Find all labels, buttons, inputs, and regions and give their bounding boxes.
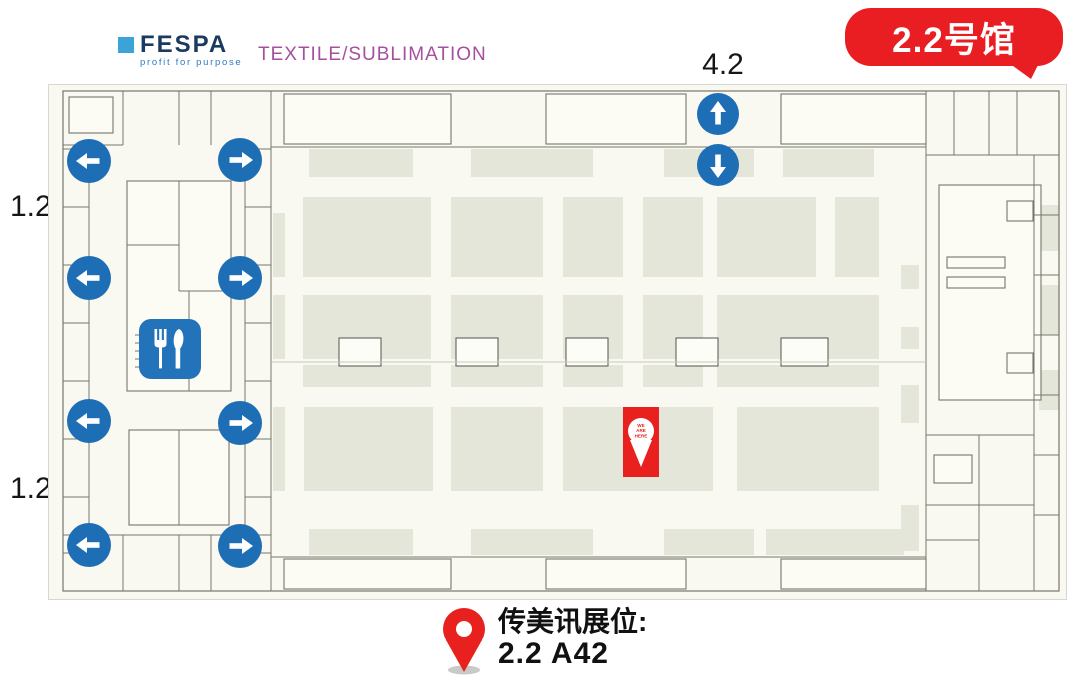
booth-block: [303, 365, 431, 387]
fespa-wordmark: FESPA: [140, 34, 242, 56]
booth-block: [303, 197, 431, 277]
booth-block: [664, 529, 754, 555]
booth-block: [471, 529, 593, 555]
arrow-right-icon: [218, 256, 262, 300]
arrow-right-icon: [218, 401, 262, 445]
booth-block: [717, 365, 879, 387]
booth-block: [1039, 205, 1059, 251]
hall-1-2-lower-label: 1.2: [10, 472, 52, 506]
legend-text: 传美讯展位: 2.2 A42: [498, 606, 647, 670]
room-outline: [69, 97, 113, 133]
arrow-left-icon: [67, 139, 111, 183]
booth-block: [1039, 370, 1059, 410]
booth-block: [273, 407, 285, 491]
room-outline: [947, 277, 1005, 288]
booth-block: [835, 197, 879, 277]
arrow-up-icon: [697, 93, 739, 135]
booth-block: [1039, 285, 1059, 335]
arrow-left-icon: [67, 399, 111, 443]
legend-title: 传美讯展位:: [498, 606, 647, 637]
booth-block: [737, 407, 879, 491]
arrow-left-icon: [67, 256, 111, 300]
arrow-down-icon: [697, 144, 739, 186]
booth-block: [643, 365, 703, 387]
booth-block: [471, 149, 593, 177]
room-outline: [1007, 201, 1033, 221]
arrow-right-icon: [218, 524, 262, 568]
hall-1-2-upper-label: 1.2: [10, 190, 52, 224]
legend-pin-icon: [434, 602, 494, 676]
hall-badge-label: 2.2号馆: [892, 12, 1016, 63]
booth-block: [901, 385, 919, 423]
booth-block: [563, 197, 623, 277]
we-are-here-marker: WEAREHERE: [623, 407, 659, 477]
fespa-logo-icon: [118, 37, 134, 53]
booth-block: [766, 529, 904, 555]
booth-block: [901, 265, 919, 289]
booth-block: [304, 407, 433, 491]
booth-block: [643, 197, 703, 277]
room-outline: [546, 94, 686, 144]
room-outline: [934, 455, 972, 483]
hall-4-2-label: 4.2: [696, 48, 750, 82]
booth-block: [783, 149, 874, 177]
legend-booth-number: 2.2 A42: [498, 637, 647, 670]
room-outline: [284, 559, 451, 589]
booth-block: [717, 197, 816, 277]
restaurant-icon: [139, 319, 201, 379]
room-outline: [1007, 353, 1033, 373]
booth-block: [451, 197, 543, 277]
hall-badge-tail: [1007, 63, 1039, 79]
room-outline: [781, 559, 926, 589]
floor-plan: WEAREHERE: [48, 84, 1067, 600]
booth-block: [563, 365, 623, 387]
booth-block: [273, 295, 285, 359]
booth-block: [309, 529, 413, 555]
hall-badge: 2.2号馆: [845, 8, 1063, 66]
arrow-right-icon: [218, 138, 262, 182]
room-outline: [546, 559, 686, 589]
booth-block: [273, 213, 285, 277]
booth-block: [901, 327, 919, 349]
booth-block: [451, 407, 543, 491]
room-outline: [781, 94, 926, 144]
booth-block: [901, 505, 919, 551]
fespa-logo: FESPA profit for purpose: [118, 34, 242, 68]
room-outline: [947, 257, 1005, 268]
we-are-here-text: HERE: [635, 433, 648, 438]
booth-block: [451, 365, 543, 387]
event-title: TEXTILE/SUBLIMATION: [258, 44, 487, 66]
fespa-tagline: profit for purpose: [140, 57, 242, 68]
room-outline: [284, 94, 451, 144]
floor-plan-drawing: WEAREHERE: [49, 85, 1066, 599]
booth-block: [309, 149, 413, 177]
arrow-left-icon: [67, 523, 111, 567]
